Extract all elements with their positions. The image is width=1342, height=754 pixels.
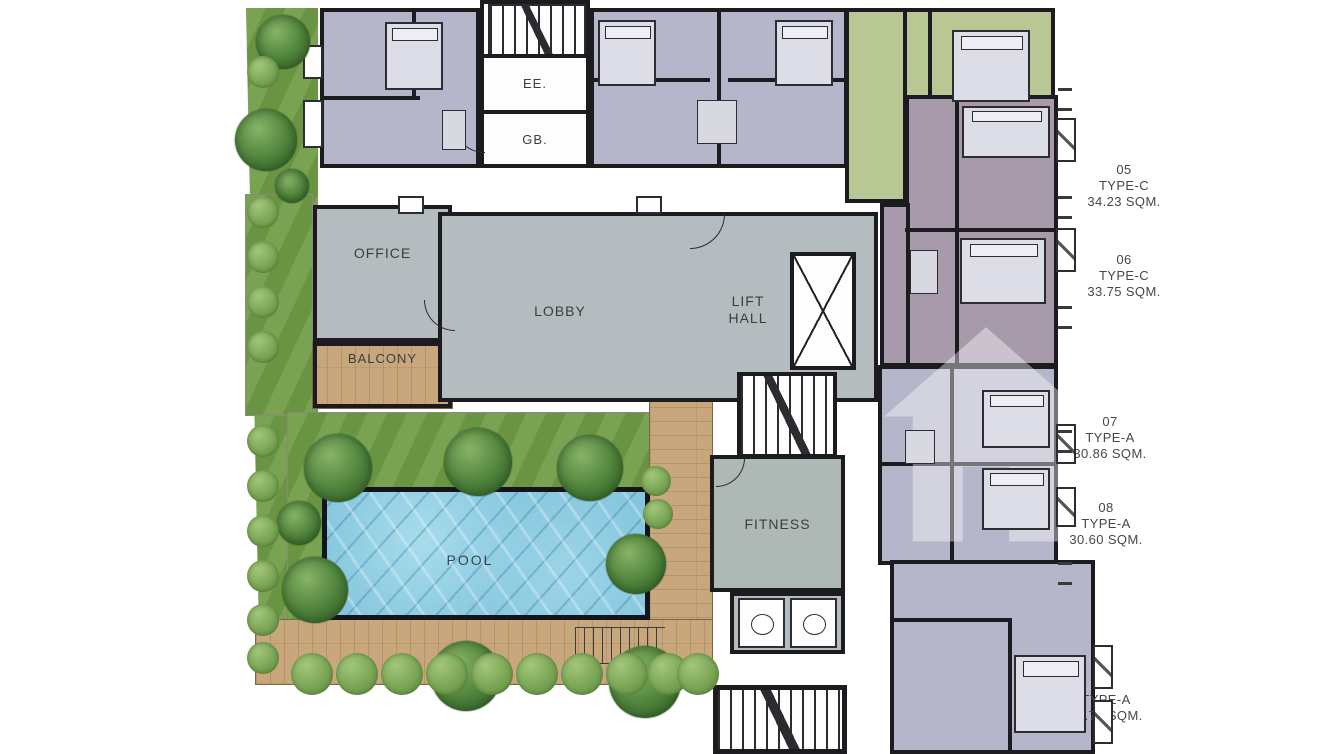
- bush-icon: [247, 286, 279, 318]
- room-label-lift-hall: LIFTHALL: [708, 290, 788, 330]
- pillow-icon: [970, 244, 1038, 257]
- bush-icon: [561, 653, 603, 695]
- bush-icon: [247, 470, 279, 502]
- ac-ledge-icon: [1056, 228, 1076, 272]
- unit-number: 06: [1074, 252, 1174, 268]
- dimension-tick: [1058, 216, 1072, 219]
- toilet-icon: [803, 614, 827, 635]
- bed-icon: [960, 238, 1046, 304]
- unit-type: TYPE-C: [1074, 178, 1174, 194]
- tree-icon: [275, 169, 309, 203]
- dimension-tick: [1058, 196, 1072, 199]
- stairs-mid: [737, 372, 837, 458]
- unit-area: 33.75 SQM.: [1074, 284, 1174, 300]
- room-label-fitness: FITNESS: [715, 510, 840, 538]
- tree-icon: [235, 109, 297, 171]
- bush-icon: [247, 560, 279, 592]
- bush-icon: [516, 653, 558, 695]
- bush-icon: [641, 466, 671, 496]
- unit-block-green-wing: [845, 8, 907, 203]
- wall-segment: [890, 618, 1012, 622]
- pillow-icon: [392, 28, 437, 42]
- bush-icon: [247, 604, 279, 636]
- unit-area: 34.23 SQM.: [1074, 194, 1174, 210]
- toilet-stall: [790, 598, 837, 648]
- table-icon: [442, 110, 466, 150]
- pillow-icon: [990, 473, 1043, 485]
- bush-icon: [247, 425, 279, 457]
- wall-segment: [320, 96, 420, 100]
- wall-segment: [717, 8, 721, 168]
- bed-icon: [775, 20, 833, 86]
- tree-icon: [277, 501, 321, 545]
- bush-icon: [677, 653, 719, 695]
- entry-canopy: [398, 196, 424, 214]
- bush-icon: [247, 196, 279, 228]
- bush-icon: [426, 653, 468, 695]
- room-label-gb: GB.: [482, 118, 588, 160]
- entry-canopy: [636, 196, 662, 214]
- wall-segment: [480, 54, 590, 58]
- pillow-icon: [972, 111, 1041, 122]
- bed-icon: [982, 390, 1050, 448]
- bush-icon: [247, 241, 279, 273]
- bush-icon: [247, 56, 279, 88]
- bush-icon: [247, 515, 279, 547]
- table-icon: [905, 430, 935, 464]
- pillow-icon: [961, 36, 1022, 50]
- room-label-pool: POOL: [420, 546, 520, 574]
- dimension-tick: [1058, 326, 1072, 329]
- pillow-icon: [1023, 661, 1079, 676]
- balcony-ledge: [303, 100, 323, 148]
- bush-icon: [291, 653, 333, 695]
- stairs-top: [488, 4, 586, 56]
- dimension-tick: [1058, 562, 1072, 565]
- bed-icon: [385, 22, 443, 90]
- wall-segment: [480, 110, 590, 114]
- pillow-icon: [990, 395, 1043, 407]
- unit-label-05: 05 TYPE-C 34.23 SQM.: [1074, 162, 1174, 210]
- lift-shaft: [790, 252, 856, 370]
- stairs-bottom: [713, 685, 847, 754]
- toilet-stall: [738, 598, 785, 648]
- bed-icon: [952, 30, 1030, 102]
- bush-icon: [606, 653, 648, 695]
- tree-icon: [606, 534, 666, 594]
- bed-icon: [962, 106, 1050, 158]
- room-label-lobby: LOBBY: [500, 296, 620, 326]
- floor-plan: EE. GB. OFFICE BALCONY LOBBY LIFTHALL FI…: [0, 0, 1342, 754]
- bush-icon: [247, 642, 279, 674]
- dimension-tick: [1058, 108, 1072, 111]
- unit-type: TYPE-C: [1074, 268, 1174, 284]
- bed-icon: [1014, 655, 1086, 733]
- ac-ledge-icon: [1093, 645, 1113, 689]
- bed-icon: [598, 20, 656, 86]
- toilet-icon: [751, 614, 775, 635]
- bush-icon: [471, 653, 513, 695]
- room-label-ee: EE.: [482, 62, 588, 104]
- office-room: [313, 205, 452, 342]
- wall-segment: [1008, 620, 1012, 754]
- table-icon: [910, 250, 938, 294]
- ac-ledge-icon: [1093, 700, 1113, 744]
- table-icon: [697, 100, 737, 144]
- bush-icon: [643, 499, 673, 529]
- unit-number: 05: [1074, 162, 1174, 178]
- unit-label-06: 06 TYPE-C 33.75 SQM.: [1074, 252, 1174, 300]
- dimension-tick: [1058, 450, 1072, 453]
- room-label-office: OFFICE: [318, 238, 447, 268]
- pillow-icon: [605, 26, 650, 39]
- tree-icon: [282, 557, 348, 623]
- bed-icon: [982, 468, 1050, 530]
- bush-icon: [247, 331, 279, 363]
- unit-area: 30.60 SQM.: [1056, 532, 1156, 548]
- ac-ledge-icon: [1056, 118, 1076, 162]
- bush-icon: [336, 653, 378, 695]
- dimension-tick: [1058, 430, 1072, 433]
- dimension-tick: [1058, 88, 1072, 91]
- ac-ledge-icon: [1056, 487, 1076, 527]
- tree-icon: [557, 435, 623, 501]
- pillow-icon: [782, 26, 827, 39]
- wall-segment: [905, 228, 1058, 232]
- bush-icon: [381, 653, 423, 695]
- room-label-balcony: BALCONY: [318, 344, 447, 372]
- tree-icon: [444, 428, 512, 496]
- tree-icon: [304, 434, 372, 502]
- dimension-tick: [1058, 582, 1072, 585]
- dimension-tick: [1058, 306, 1072, 309]
